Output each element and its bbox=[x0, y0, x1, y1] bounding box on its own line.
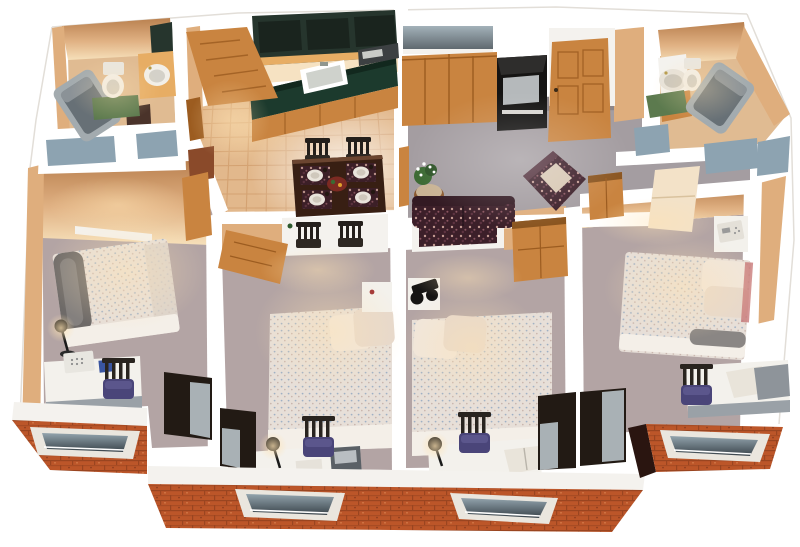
living-window bbox=[403, 26, 493, 52]
dresser-3 bbox=[512, 217, 568, 282]
brick-section-left bbox=[12, 402, 147, 474]
bedroom4-open-door bbox=[648, 166, 700, 232]
brick-section-center bbox=[148, 466, 645, 532]
closet2-door bbox=[222, 428, 240, 468]
upper-cabinet-door-3 bbox=[354, 15, 396, 47]
desk2-laptop-screen bbox=[334, 450, 357, 464]
bed-1 bbox=[52, 238, 180, 347]
bed-2 bbox=[268, 306, 395, 452]
centerpiece bbox=[327, 177, 347, 192]
nightstand-4 bbox=[714, 216, 748, 252]
armoire-4 bbox=[588, 172, 624, 220]
nightstand2-item bbox=[370, 290, 375, 295]
closet1-door bbox=[190, 382, 210, 438]
bath1-mat bbox=[92, 95, 140, 120]
place-setting-2 bbox=[346, 163, 376, 182]
centerpiece-orange bbox=[338, 183, 342, 187]
brick-section-right bbox=[628, 424, 783, 478]
centerpiece-green bbox=[331, 180, 335, 184]
floorplan-svg: 3D cutaway floor plan — four-bedroom two… bbox=[0, 0, 800, 547]
bedroom2-niche bbox=[282, 214, 388, 256]
closet3-door bbox=[540, 422, 558, 470]
toilet-2 bbox=[683, 58, 701, 91]
closet4-door bbox=[602, 390, 624, 462]
floorplan-render: 3D cutaway floor plan — four-bedroom two… bbox=[0, 0, 800, 547]
place-setting-3 bbox=[302, 190, 332, 209]
sofa bbox=[412, 196, 515, 228]
tv-cabinet-top bbox=[497, 55, 547, 75]
bedroom1-door bbox=[182, 172, 212, 241]
corridor-glass-panel-2 bbox=[704, 138, 759, 174]
upper-cabinet-door-2 bbox=[306, 18, 350, 50]
corridor-glass-panel-1 bbox=[634, 124, 670, 156]
bedroom4-side-window bbox=[757, 136, 790, 176]
upper-cabinet-door-1 bbox=[258, 20, 302, 53]
tv-screen bbox=[503, 75, 539, 105]
sink-faucet bbox=[320, 62, 328, 66]
plant-foliage-2 bbox=[425, 164, 437, 176]
place-setting-1 bbox=[300, 166, 330, 185]
bedroom1-left-wall bbox=[22, 164, 44, 440]
niche-plant-dot bbox=[288, 224, 293, 229]
bed-4 bbox=[619, 252, 754, 361]
wall-bed2-bed3 bbox=[390, 212, 406, 474]
transom-panel-left-1 bbox=[46, 136, 116, 166]
door-knob bbox=[554, 88, 558, 92]
nightstand-2 bbox=[362, 282, 392, 312]
place-setting-4 bbox=[348, 188, 378, 207]
tv-shelf-strip bbox=[502, 110, 543, 114]
desk1-phone bbox=[63, 350, 95, 373]
desk4-laptop bbox=[754, 364, 790, 400]
toilet-1 bbox=[102, 62, 124, 98]
living-right-wall bbox=[614, 27, 644, 122]
vanity-sink-1 bbox=[138, 51, 176, 99]
transom-panel-left-2 bbox=[136, 130, 178, 159]
bedroom3-door-leaf bbox=[399, 146, 409, 207]
